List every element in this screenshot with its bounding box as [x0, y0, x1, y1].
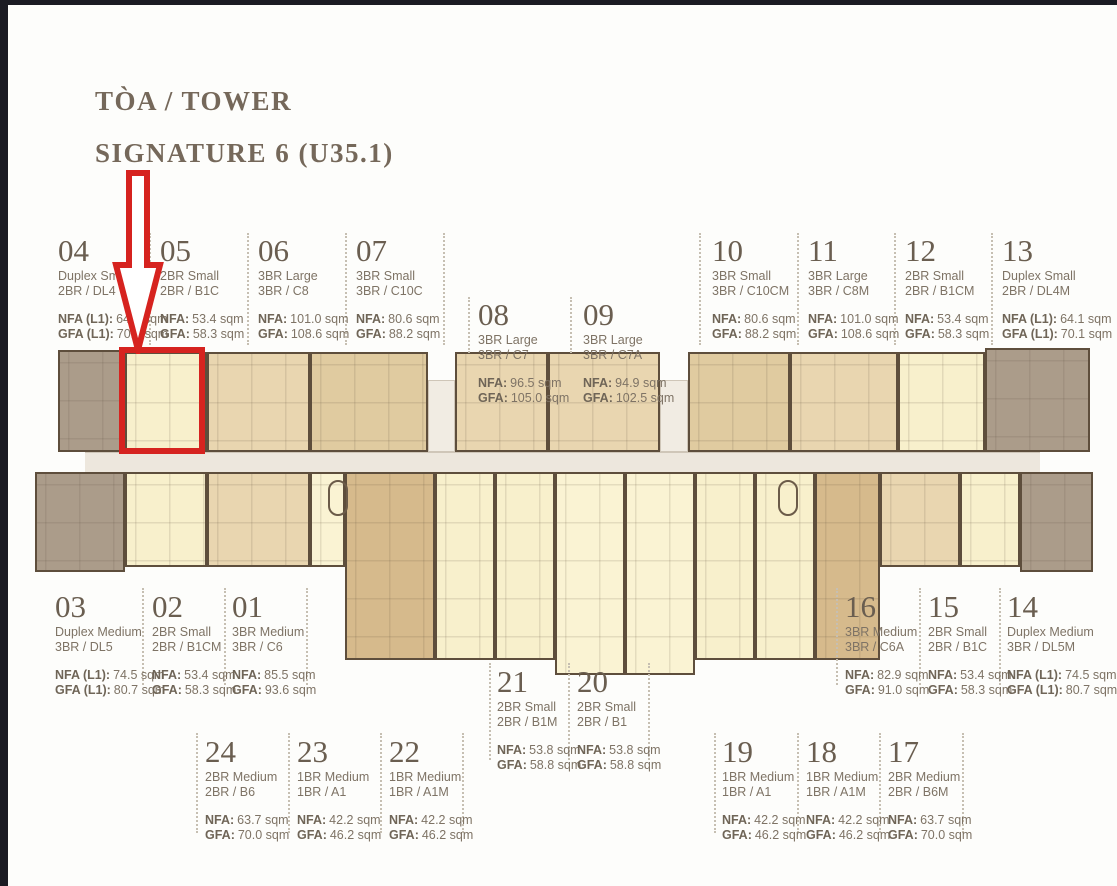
nfa-value: 53.4 sqm: [937, 312, 988, 326]
nfa-label: NFA:: [297, 813, 326, 827]
nfa-label: NFA:: [583, 376, 612, 390]
unit-type: 1BR Medium: [722, 770, 818, 785]
unit-label-01: 01 3BR Medium 3BR / C6 NFA:85.5 sqm GFA:…: [232, 592, 328, 698]
gfa-value: 46.2 sqm: [422, 828, 473, 842]
leader-line: [489, 663, 491, 760]
gfa-label: GFA:: [712, 327, 742, 341]
gfa-value: 58.3 sqm: [193, 327, 244, 341]
gfa-label: GFA (L1):: [58, 327, 114, 341]
unit-code: 3BR / C7: [478, 348, 574, 363]
unit-type: 3BR Large: [258, 269, 354, 284]
corridor: [85, 452, 1040, 474]
gfa-value: 108.6 sqm: [291, 327, 349, 341]
unit-nfa: NFA:80.6 sqm: [712, 312, 808, 327]
unit-gfa: GFA:70.0 sqm: [205, 828, 301, 843]
gfa-value: 80.7 sqm: [1066, 683, 1117, 697]
unit-type: Duplex Small: [1002, 269, 1098, 284]
unit-nfa: NFA:63.7 sqm: [888, 813, 984, 828]
nfa-value: 42.2 sqm: [838, 813, 889, 827]
unit-label-20: 20 2BR Small 2BR / B1 NFA:53.8 sqm GFA:5…: [577, 667, 673, 773]
unit-type: 3BR Large: [478, 333, 574, 348]
unit-16-area: [880, 472, 960, 567]
gfa-value: 58.3 sqm: [938, 327, 989, 341]
nfa-label: NFA:: [356, 312, 385, 326]
gfa-value: 70.1 sqm: [1061, 327, 1112, 341]
nfa-value: 63.7 sqm: [237, 813, 288, 827]
unit-21-area: [555, 472, 625, 675]
unit-gfa: GFA (L1):80.7 sqm: [55, 683, 151, 698]
unit-gfa: GFA:46.2 sqm: [297, 828, 393, 843]
unit-code: 3BR / DL5: [55, 640, 151, 655]
unit-type: 3BR Medium: [232, 625, 328, 640]
nfa-label: NFA:: [845, 668, 874, 682]
unit-nfa: NFA:85.5 sqm: [232, 668, 328, 683]
gfa-label: GFA:: [583, 391, 613, 405]
unit-nfa: NFA:42.2 sqm: [389, 813, 485, 828]
leader-line: [699, 233, 701, 345]
unit-05-highlight-box: [119, 347, 205, 454]
unit-code: 2BR / B6: [205, 785, 301, 800]
gfa-label: GFA:: [205, 828, 235, 842]
nfa-value: 101.0 sqm: [840, 312, 898, 326]
nfa-label: NFA (L1):: [1007, 668, 1062, 682]
unit-label-24: 24 2BR Medium 2BR / B6 NFA:63.7 sqm GFA:…: [205, 737, 301, 843]
gfa-label: GFA:: [297, 828, 327, 842]
unit-02-area: [125, 472, 207, 567]
unit-19-area: [695, 472, 755, 660]
stair-oval-left: [328, 480, 348, 516]
unit-type: 3BR Large: [583, 333, 679, 348]
unit-label-16: 16 3BR Medium 3BR / C6A NFA:82.9 sqm GFA…: [845, 592, 941, 698]
unit-gfa: GFA:46.2 sqm: [389, 828, 485, 843]
unit-label-12: 12 2BR Small 2BR / B1CM NFA:53.4 sqm GFA…: [905, 236, 1001, 342]
gfa-value: 58.8 sqm: [530, 758, 581, 772]
unit-nfa: NFA:63.7 sqm: [205, 813, 301, 828]
leader-line: [468, 297, 470, 353]
gfa-label: GFA (L1):: [55, 683, 111, 697]
nfa-label: NFA:: [478, 376, 507, 390]
unit-label-09: 09 3BR Large 3BR / C7A NFA:94.9 sqm GFA:…: [583, 300, 679, 406]
unit-nfa: NFA:80.6 sqm: [356, 312, 452, 327]
unit-14-area: [1020, 472, 1093, 572]
nfa-label: NFA:: [722, 813, 751, 827]
gfa-label: GFA:: [258, 327, 288, 341]
unit-code: 2BR / B1CM: [905, 284, 1001, 299]
nfa-value: 63.7 sqm: [920, 813, 971, 827]
unit-gfa: GFA:102.5 sqm: [583, 391, 679, 406]
unit-number: 24: [205, 737, 301, 767]
gfa-value: 70.0 sqm: [921, 828, 972, 842]
nfa-value: 101.0 sqm: [290, 312, 348, 326]
unit-03-area: [35, 472, 125, 572]
gfa-value: 58.3 sqm: [961, 683, 1012, 697]
unit-number: 17: [888, 737, 984, 767]
unit-type: 3BR Large: [808, 269, 904, 284]
gfa-label: GFA:: [389, 828, 419, 842]
unit-nfa: NFA:53.4 sqm: [905, 312, 1001, 327]
unit-label-05: 05 2BR Small 2BR / B1C NFA:53.4 sqm GFA:…: [160, 236, 256, 342]
gfa-label: GFA:: [722, 828, 752, 842]
unit-nfa: NFA (L1):64.1 sqm: [1002, 312, 1098, 327]
unit-type: 2BR Medium: [205, 770, 301, 785]
unit-code: 1BR / A1: [722, 785, 818, 800]
nfa-value: 64.1 sqm: [1060, 312, 1111, 326]
nfa-value: 42.2 sqm: [421, 813, 472, 827]
unit-gfa: GFA:88.2 sqm: [712, 327, 808, 342]
unit-label-08: 08 3BR Large 3BR / C7 NFA:96.5 sqm GFA:1…: [478, 300, 574, 406]
gfa-label: GFA:: [232, 683, 262, 697]
unit-nfa: NFA:94.9 sqm: [583, 376, 679, 391]
gfa-label: GFA (L1):: [1007, 683, 1063, 697]
unit-nfa: NFA (L1):74.5 sqm: [55, 668, 151, 683]
nfa-label: NFA (L1):: [1002, 312, 1057, 326]
nfa-value: 53.4 sqm: [960, 668, 1011, 682]
unit-nfa: NFA:101.0 sqm: [258, 312, 354, 327]
gfa-value: 46.2 sqm: [755, 828, 806, 842]
unit-24-area: [345, 472, 435, 660]
floorplan-page: TÒA / TOWER SIGNATURE 6 (U35.1): [0, 0, 1117, 886]
nfa-value: 80.6 sqm: [388, 312, 439, 326]
unit-code: 3BR / DL5M: [1007, 640, 1103, 655]
unit-label-06: 06 3BR Large 3BR / C8 NFA:101.0 sqm GFA:…: [258, 236, 354, 342]
nfa-value: 53.8 sqm: [609, 743, 660, 757]
gfa-value: 108.6 sqm: [841, 327, 899, 341]
unit-number: 19: [722, 737, 818, 767]
nfa-label: NFA (L1):: [58, 312, 113, 326]
unit-01-area: [207, 472, 310, 567]
unit-number: 10: [712, 236, 808, 266]
unit-gfa: GFA:46.2 sqm: [722, 828, 818, 843]
lobby-area: [428, 380, 455, 452]
title-line-1: TÒA / TOWER: [95, 86, 394, 117]
unit-gfa: GFA:93.6 sqm: [232, 683, 328, 698]
unit-gfa: GFA:70.0 sqm: [888, 828, 984, 843]
stair-oval-right: [778, 480, 798, 516]
gfa-value: 58.8 sqm: [610, 758, 661, 772]
unit-type: 1BR Medium: [389, 770, 485, 785]
gfa-value: 102.5 sqm: [616, 391, 674, 405]
leader-line: [836, 588, 838, 685]
unit-10-area: [688, 352, 790, 452]
nfa-value: 53.4 sqm: [192, 312, 243, 326]
unit-label-03: 03 Duplex Medium 3BR / DL5 NFA (L1):74.5…: [55, 592, 151, 698]
unit-label-22: 22 1BR Medium 1BR / A1M NFA:42.2 sqm GFA…: [389, 737, 485, 843]
unit-type: 3BR Small: [712, 269, 808, 284]
unit-gfa: GFA:58.8 sqm: [577, 758, 673, 773]
unit-number: 09: [583, 300, 679, 330]
unit-type: 2BR Small: [577, 700, 673, 715]
gfa-label: GFA:: [806, 828, 836, 842]
gfa-label: GFA:: [845, 683, 875, 697]
unit-15-area: [960, 472, 1020, 567]
unit-type: Duplex Medium: [1007, 625, 1103, 640]
frame-top-border: [0, 0, 1117, 5]
unit-code: 3BR / C8M: [808, 284, 904, 299]
gfa-value: 91.0 sqm: [878, 683, 929, 697]
unit-label-14: 14 Duplex Medium 3BR / DL5M NFA (L1):74.…: [1007, 592, 1103, 698]
gfa-value: 46.2 sqm: [330, 828, 381, 842]
unit-type: 1BR Medium: [297, 770, 393, 785]
unit-type: 2BR Medium: [888, 770, 984, 785]
unit-code: 3BR / C7A: [583, 348, 679, 363]
unit-nfa: NFA:42.2 sqm: [722, 813, 818, 828]
gfa-value: 58.3 sqm: [185, 683, 236, 697]
nfa-label: NFA:: [928, 668, 957, 682]
unit-number: 11: [808, 236, 904, 266]
nfa-value: 82.9 sqm: [877, 668, 928, 682]
unit-number: 08: [478, 300, 574, 330]
unit-code: 1BR / A1M: [389, 785, 485, 800]
unit-number: 12: [905, 236, 1001, 266]
unit-gfa: GFA:91.0 sqm: [845, 683, 941, 698]
unit-number: 22: [389, 737, 485, 767]
unit-label-07: 07 3BR Small 3BR / C10C NFA:80.6 sqm GFA…: [356, 236, 452, 342]
title-line-2: SIGNATURE 6 (U35.1): [95, 138, 394, 169]
unit-nfa: NFA:42.2 sqm: [297, 813, 393, 828]
nfa-label: NFA:: [497, 743, 526, 757]
nfa-label: NFA:: [806, 813, 835, 827]
unit-gfa: GFA:88.2 sqm: [356, 327, 452, 342]
unit-13-area: [985, 348, 1090, 452]
unit-gfa: GFA:108.6 sqm: [258, 327, 354, 342]
unit-nfa: NFA:53.8 sqm: [577, 743, 673, 758]
unit-gfa: GFA:105.0 sqm: [478, 391, 574, 406]
nfa-value: 42.2 sqm: [329, 813, 380, 827]
unit-label-17: 17 2BR Medium 2BR / B6M NFA:63.7 sqm GFA…: [888, 737, 984, 843]
nfa-label: NFA:: [205, 813, 234, 827]
gfa-label: GFA:: [497, 758, 527, 772]
unit-nfa: NFA (L1):74.5 sqm: [1007, 668, 1103, 683]
unit-label-11: 11 3BR Large 3BR / C8M NFA:101.0 sqm GFA…: [808, 236, 904, 342]
unit-gfa: GFA:58.3 sqm: [160, 327, 256, 342]
nfa-label: NFA:: [577, 743, 606, 757]
nfa-value: 53.8 sqm: [529, 743, 580, 757]
gfa-value: 46.2 sqm: [839, 828, 890, 842]
unit-label-19: 19 1BR Medium 1BR / A1 NFA:42.2 sqm GFA:…: [722, 737, 818, 843]
unit-type: 2BR Small: [905, 269, 1001, 284]
unit-gfa: GFA (L1):80.7 sqm: [1007, 683, 1103, 698]
unit-number: 14: [1007, 592, 1103, 622]
gfa-value: 88.2 sqm: [389, 327, 440, 341]
unit-number: 07: [356, 236, 452, 266]
nfa-value: 94.9 sqm: [615, 376, 666, 390]
unit-code: 3BR / C10CM: [712, 284, 808, 299]
unit-number: 13: [1002, 236, 1098, 266]
nfa-value: 96.5 sqm: [510, 376, 561, 390]
nfa-label: NFA:: [152, 668, 181, 682]
gfa-value: 88.2 sqm: [745, 327, 796, 341]
gfa-label: GFA:: [928, 683, 958, 697]
gfa-value: 70.0 sqm: [238, 828, 289, 842]
unit-20-area: [625, 472, 695, 675]
unit-number: 20: [577, 667, 673, 697]
unit-type: 2BR Small: [160, 269, 256, 284]
unit-11-area: [790, 352, 898, 452]
unit-number: 06: [258, 236, 354, 266]
nfa-label: NFA:: [808, 312, 837, 326]
unit-code: 1BR / A1: [297, 785, 393, 800]
unit-code: 3BR / C6: [232, 640, 328, 655]
nfa-label: NFA:: [258, 312, 287, 326]
gfa-label: GFA:: [356, 327, 386, 341]
nfa-label: NFA:: [888, 813, 917, 827]
unit-number: 03: [55, 592, 151, 622]
unit-code: 2BR / B6M: [888, 785, 984, 800]
nfa-label: NFA (L1):: [55, 668, 110, 682]
unit-number: 16: [845, 592, 941, 622]
leader-line: [196, 733, 198, 833]
unit-number: 05: [160, 236, 256, 266]
gfa-label: GFA:: [152, 683, 182, 697]
unit-code: 2BR / B1C: [160, 284, 256, 299]
gfa-value: 93.6 sqm: [265, 683, 316, 697]
nfa-value: 53.4 sqm: [184, 668, 235, 682]
unit-gfa: GFA:108.6 sqm: [808, 327, 904, 342]
unit-type: Duplex Medium: [55, 625, 151, 640]
unit-nfa: NFA:82.9 sqm: [845, 668, 941, 683]
unit-code: 2BR / B1: [577, 715, 673, 730]
unit-06-area: [207, 352, 310, 452]
gfa-label: GFA:: [478, 391, 508, 405]
unit-nfa: NFA:101.0 sqm: [808, 312, 904, 327]
unit-nfa: NFA:53.4 sqm: [160, 312, 256, 327]
nfa-label: NFA:: [905, 312, 934, 326]
unit-type: 3BR Small: [356, 269, 452, 284]
unit-code: 3BR / C6A: [845, 640, 941, 655]
unit-07-area: [310, 352, 428, 452]
nfa-value: 74.5 sqm: [1065, 668, 1116, 682]
unit-gfa: GFA (L1):70.1 sqm: [1002, 327, 1098, 342]
nfa-value: 85.5 sqm: [264, 668, 315, 682]
unit-gfa: GFA:58.3 sqm: [905, 327, 1001, 342]
unit-label-23: 23 1BR Medium 1BR / A1 NFA:42.2 sqm GFA:…: [297, 737, 393, 843]
unit-type: 3BR Medium: [845, 625, 941, 640]
unit-label-10: 10 3BR Small 3BR / C10CM NFA:80.6 sqm GF…: [712, 236, 808, 342]
nfa-label: NFA:: [389, 813, 418, 827]
gfa-label: GFA:: [888, 828, 918, 842]
unit-23-area: [435, 472, 495, 660]
gfa-label: GFA:: [808, 327, 838, 341]
nfa-value: 80.6 sqm: [744, 312, 795, 326]
unit-code: 3BR / C10C: [356, 284, 452, 299]
nfa-value: 42.2 sqm: [754, 813, 805, 827]
highlight-arrow-icon: [110, 170, 166, 354]
unit-22-area: [495, 472, 555, 660]
unit-code: 2BR / DL4M: [1002, 284, 1098, 299]
unit-04-area: [58, 350, 125, 452]
unit-nfa: NFA:96.5 sqm: [478, 376, 574, 391]
unit-number: 23: [297, 737, 393, 767]
nfa-label: NFA:: [232, 668, 261, 682]
unit-12-area: [898, 352, 985, 452]
leader-line: [714, 733, 716, 833]
unit-label-13: 13 Duplex Small 2BR / DL4M NFA (L1):64.1…: [1002, 236, 1098, 342]
unit-number: 01: [232, 592, 328, 622]
gfa-label: GFA (L1):: [1002, 327, 1058, 341]
unit-code: 3BR / C8: [258, 284, 354, 299]
gfa-value: 105.0 sqm: [511, 391, 569, 405]
gfa-label: GFA:: [905, 327, 935, 341]
frame-left-border: [0, 0, 8, 886]
nfa-label: NFA:: [712, 312, 741, 326]
gfa-label: GFA:: [577, 758, 607, 772]
